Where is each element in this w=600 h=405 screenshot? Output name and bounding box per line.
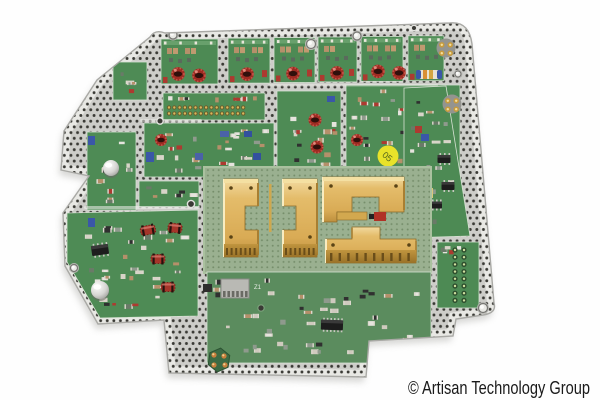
svg-text:© Artisan Technology Group: © Artisan Technology Group [408,378,590,398]
svg-text:Z1: Z1 [254,285,262,291]
